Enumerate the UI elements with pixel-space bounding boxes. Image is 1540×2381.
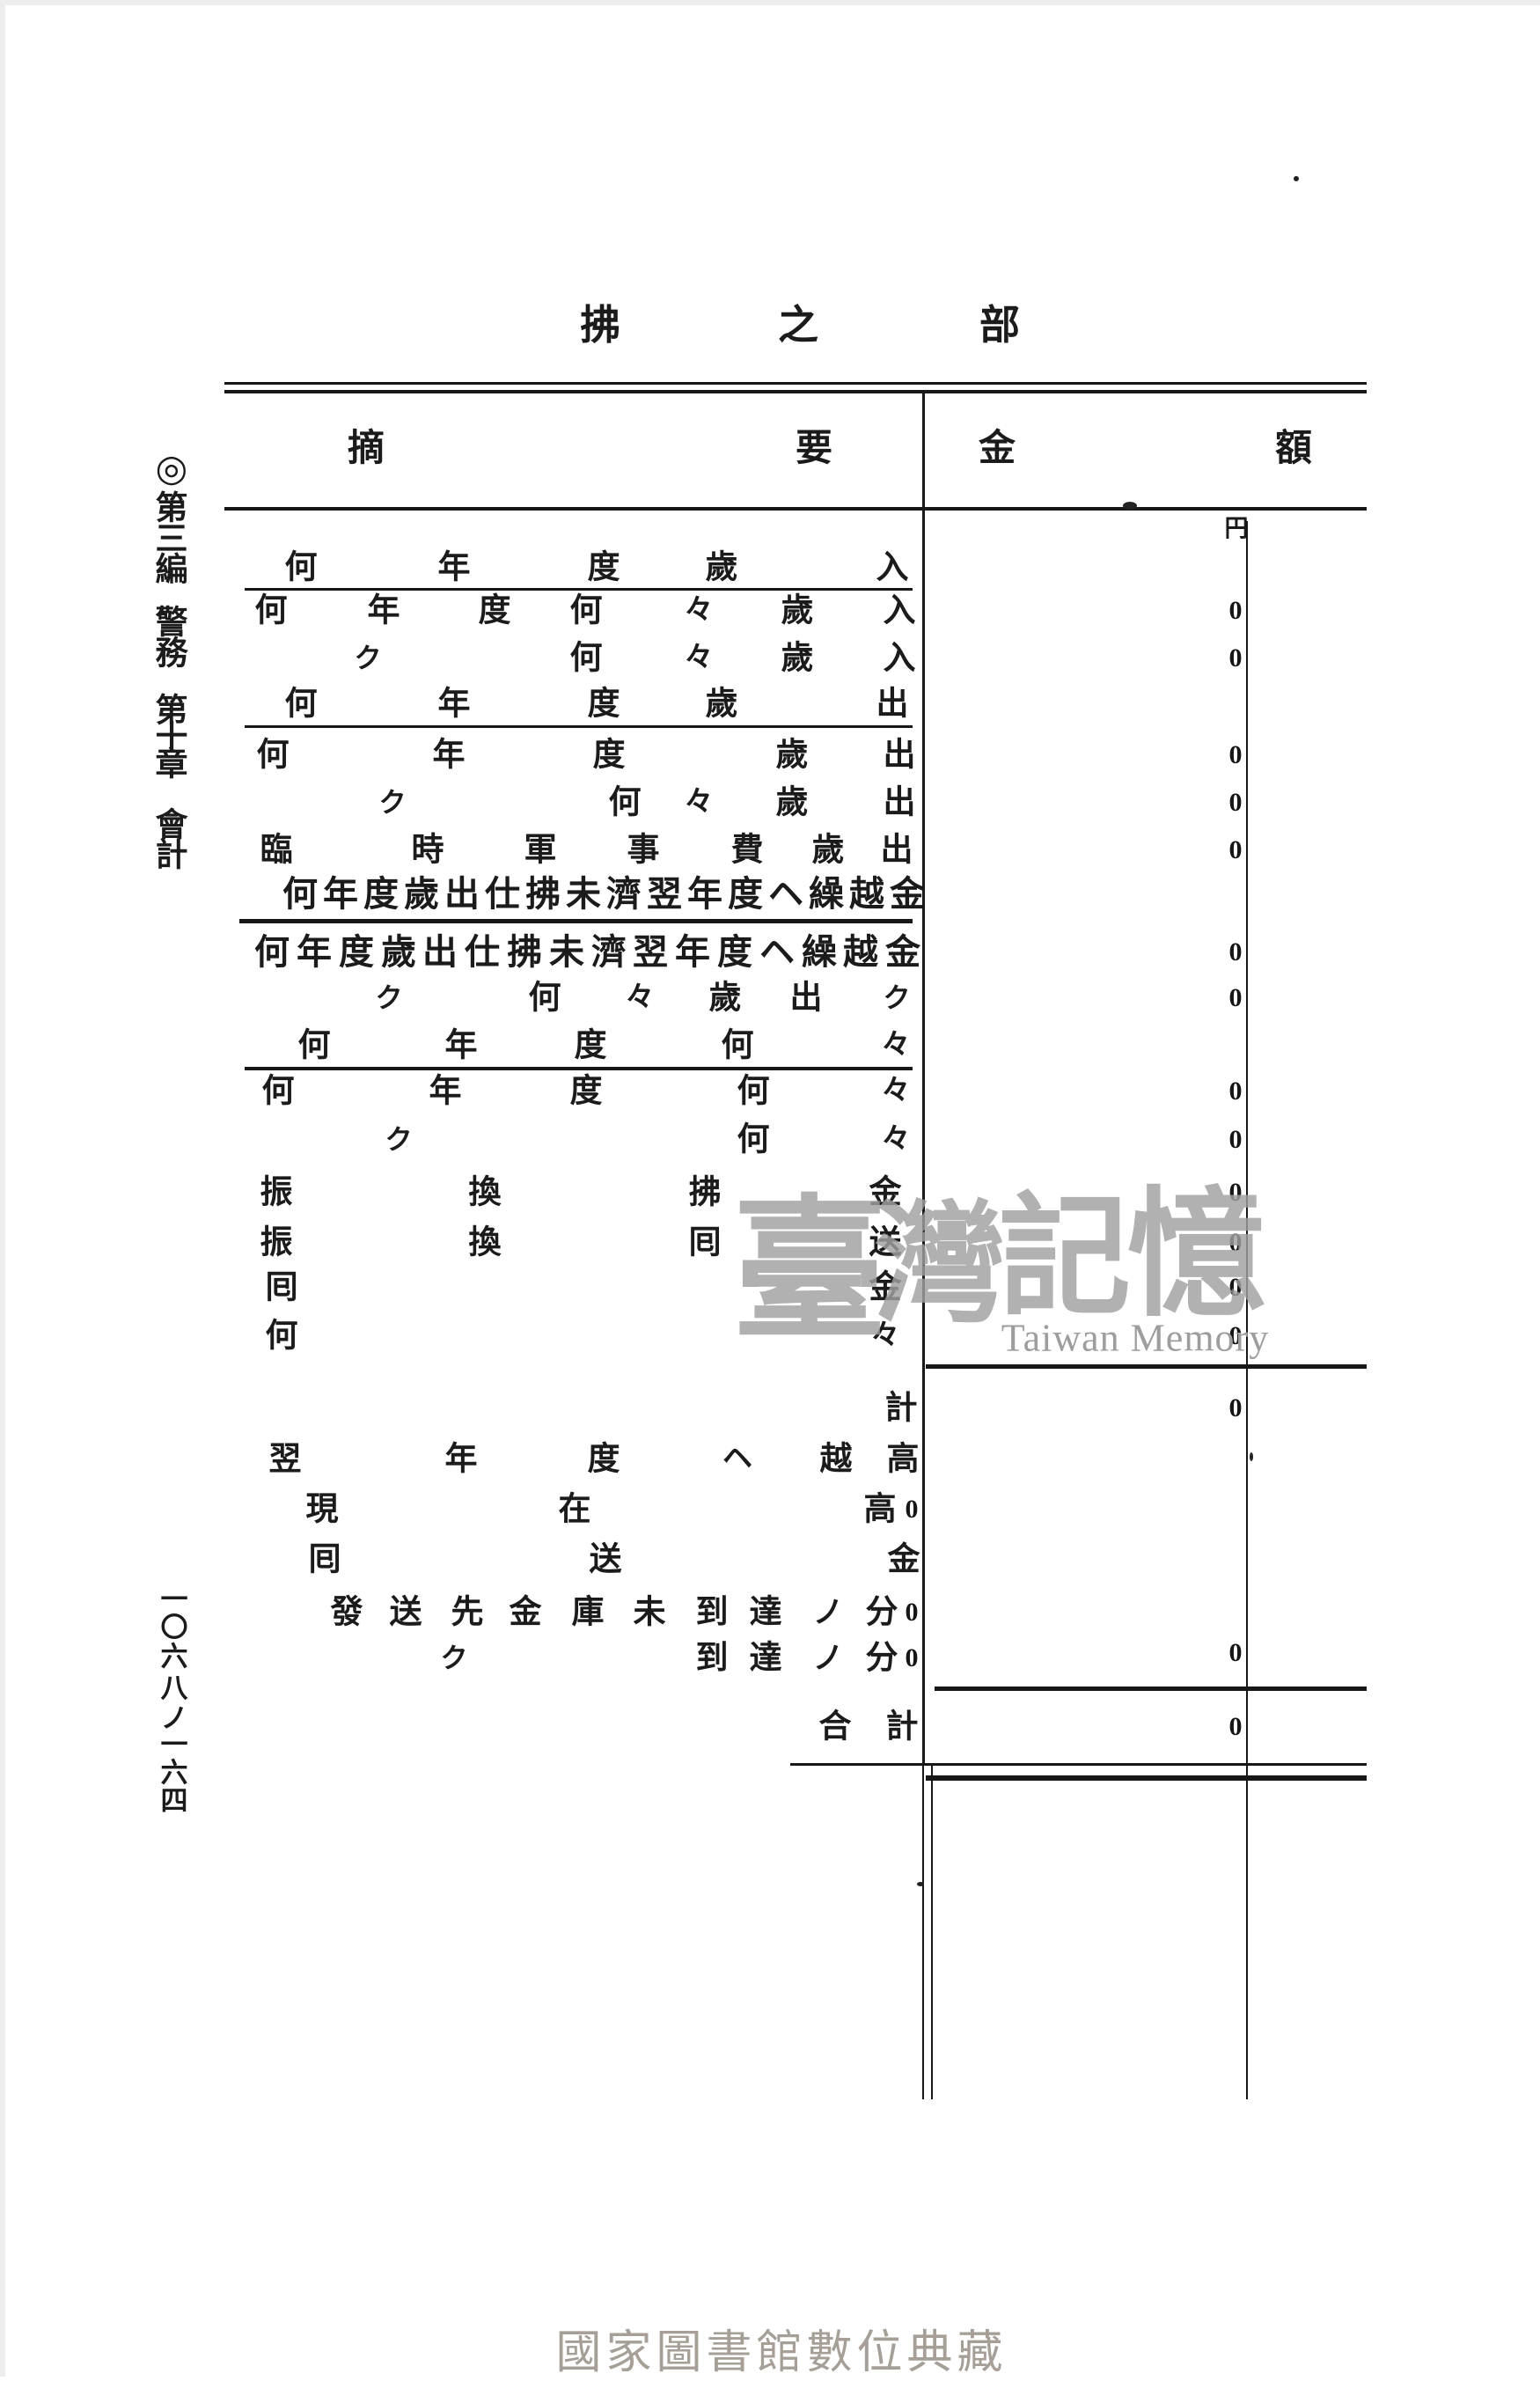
row-char: 出 (876, 688, 909, 721)
row-char: 度 (728, 877, 763, 912)
row-char: 發 (331, 1597, 363, 1629)
table-rule-horizontal (224, 382, 1367, 385)
amount-value: 0 (1229, 1078, 1243, 1105)
row-char: 何 (285, 552, 318, 584)
row-char: 費 (731, 834, 764, 867)
row-char: 何 (266, 1320, 298, 1353)
row-char: 時 (412, 834, 444, 867)
page-number-char: 一 (161, 1586, 188, 1613)
amount-value: 0 (1229, 1640, 1243, 1666)
row-char: 拂 (507, 935, 542, 970)
watermark-cjk-char: 臺 (733, 1195, 887, 1349)
row-char: 未 (549, 935, 584, 970)
row-char: 越 (849, 877, 884, 912)
row-char: 囘 (689, 1227, 722, 1260)
amount-value: 0 (1229, 742, 1243, 768)
row-char: ヘ (722, 1444, 752, 1474)
row-underline (245, 588, 913, 591)
row-char: 囘 (266, 1272, 298, 1304)
sidebar-char: 章 (156, 749, 188, 782)
row-char: 換 (469, 1227, 502, 1260)
row-char: 何 (570, 595, 603, 628)
scan-speck (917, 1882, 924, 1886)
row-char: 送 (390, 1597, 422, 1629)
row-char: 金 (885, 935, 920, 970)
amount-value: 0 (1229, 1714, 1243, 1740)
row-char: 出 (444, 877, 480, 912)
row-char: 年 (438, 688, 471, 721)
scan-speck (1250, 1452, 1253, 1461)
sidebar-char: 第 (156, 493, 188, 525)
page-number-char: 一 (161, 1731, 188, 1759)
row-char: 未 (566, 877, 601, 912)
row-char: 達 (750, 1642, 782, 1675)
sidebar-char: 警 (156, 607, 188, 640)
page-number-char: ノ (161, 1705, 188, 1732)
row-char: 未 (634, 1597, 666, 1629)
page-number-char: 六 (161, 1643, 188, 1671)
table-rule-horizontal (926, 1775, 1367, 1781)
row-char: 何 (257, 739, 290, 772)
row-char: ヘ (759, 935, 795, 970)
page-number-char: 四 (161, 1788, 188, 1815)
row-char: 年 (445, 1030, 478, 1062)
row-char: 出 (884, 787, 916, 819)
row-char: 高 (887, 1444, 920, 1476)
table-rule-vertical (922, 393, 925, 1763)
footer-archive-label: 國家圖書館數位典藏 (555, 2315, 1007, 2381)
row-char: 々 (685, 597, 714, 626)
row-char: 度 (363, 877, 399, 912)
row-char: ク (441, 1645, 468, 1672)
row-char: 歲 (776, 739, 809, 772)
row-char: 度 (479, 595, 511, 628)
row-char: 達 (750, 1597, 782, 1629)
row-char: 越 (843, 935, 878, 970)
row-char: 歲 (404, 877, 439, 912)
row-char: 何 (737, 1124, 770, 1157)
row-char: 事 (627, 834, 660, 867)
amount-value: 0 (1229, 1395, 1243, 1422)
row-char: 高 (864, 1494, 897, 1526)
row-underline (245, 725, 913, 728)
row-char: 年 (687, 877, 722, 912)
row-char: 度 (593, 739, 626, 772)
row-char: 翌 (633, 935, 668, 970)
row-char: 計 (886, 1711, 919, 1744)
row-char: 繰 (809, 877, 844, 912)
row-char: 々 (685, 644, 714, 673)
row-char: 振 (260, 1227, 293, 1260)
row-char: 度 (717, 935, 752, 970)
row-char: 年 (433, 739, 466, 772)
row-char: 年 (429, 1076, 462, 1108)
amount-header-char: 額 (1275, 430, 1312, 467)
sidebar-char: ◎ (156, 451, 188, 488)
row-char: ヘ (768, 877, 803, 912)
scan-edge-left (0, 0, 5, 2377)
row-char: ク (355, 645, 382, 672)
edge-zero-value: 0 (906, 1645, 919, 1672)
row-char: 現 (306, 1494, 339, 1526)
row-char: ク (379, 790, 407, 817)
table-rule-vertical (922, 1763, 924, 2099)
row-char: 濟 (591, 935, 627, 970)
amount-value: 0 (1229, 1127, 1243, 1153)
row-char: 合 (819, 1711, 852, 1744)
row-char: 振 (260, 1177, 293, 1209)
row-char: 越 (820, 1444, 853, 1476)
row-char: 入 (884, 643, 916, 675)
row-char: 々 (685, 789, 714, 818)
row-char: 何 (254, 935, 290, 970)
watermark-cjk-char: 灣 (874, 1200, 1006, 1332)
page-number-char: 六 (161, 1760, 188, 1787)
row-char: 分 (866, 1597, 898, 1629)
amount-value: 0 (1229, 837, 1243, 863)
watermark-cjk-char: 憶 (1127, 1187, 1266, 1326)
row-char: 翌 (269, 1444, 302, 1476)
row-char: 何 (722, 1030, 754, 1062)
row-underline (239, 919, 913, 923)
row-char: 歲 (706, 552, 738, 584)
row-char: 囘 (309, 1544, 341, 1576)
row-char: 歲 (812, 834, 845, 867)
row-char: 到 (696, 1597, 729, 1629)
sidebar-char: 編 (156, 555, 188, 587)
row-char: 歲 (381, 935, 416, 970)
title-char: 部 (979, 305, 1020, 346)
row-char: 度 (588, 688, 620, 721)
row-char: 度 (575, 1030, 607, 1062)
table-rule-vertical (931, 1763, 933, 2099)
row-char: 金 (510, 1597, 542, 1629)
scan-speck (1123, 502, 1137, 510)
row-char: 歲 (781, 595, 814, 628)
row-char: 何 (609, 787, 642, 819)
table-rule-horizontal (935, 1687, 1367, 1691)
row-char: 出 (884, 739, 916, 772)
row-char: 換 (469, 1177, 502, 1209)
row-char: 年 (323, 877, 358, 912)
row-char: 出 (422, 935, 458, 970)
row-char: 到 (696, 1642, 729, 1675)
table-rule-horizontal (224, 507, 1367, 511)
row-char: 歲 (706, 688, 738, 721)
row-char: 金 (890, 877, 925, 912)
summary-header-char: 摘 (348, 430, 385, 467)
amount-value: 0 (1229, 645, 1243, 672)
row-char: 何 (298, 1030, 331, 1062)
row-char: 計 (885, 1393, 918, 1425)
row-char: 何 (285, 688, 318, 721)
title-char: 拂 (580, 305, 620, 346)
row-char: 歲 (776, 787, 809, 819)
scanned-ledger-page: { "title": { "text": "拂之部", "y": 370, "c… (0, 0, 1540, 2377)
summary-header-char: 要 (796, 430, 832, 467)
row-char: 拂 (525, 877, 561, 912)
row-char: 々 (882, 1077, 911, 1106)
amount-value: 0 (1229, 985, 1243, 1011)
amount-value: 0 (1229, 939, 1243, 966)
row-char: 年 (438, 552, 471, 584)
row-char: 仕 (465, 935, 500, 970)
edge-zero-value: 0 (906, 1599, 919, 1626)
scan-speck (1294, 176, 1299, 181)
row-char: 年 (297, 935, 332, 970)
row-char: 入 (876, 552, 909, 584)
row-char: 濟 (606, 877, 642, 912)
row-char: 度 (588, 552, 620, 584)
row-char: 歲 (709, 982, 742, 1015)
row-char: 々 (882, 1126, 911, 1155)
row-char: 入 (884, 595, 916, 628)
row-char: 年 (445, 1444, 478, 1476)
table-rule-horizontal (790, 1763, 1367, 1766)
row-char: 分 (866, 1642, 898, 1675)
row-char: 何 (255, 595, 288, 628)
row-char: 臨 (260, 834, 293, 867)
sidebar-char: 計 (156, 840, 188, 872)
amount-value: 0 (1229, 790, 1243, 816)
row-char: 度 (339, 935, 374, 970)
row-char: 々 (626, 984, 655, 1013)
page-number-char: 八 (161, 1675, 188, 1702)
row-char: ク (884, 985, 911, 1012)
row-char: 拂 (689, 1177, 722, 1209)
row-char: ク (376, 985, 403, 1012)
currency-unit-label: 円 (1225, 518, 1249, 541)
row-char: 金 (888, 1544, 920, 1576)
row-char: 出 (790, 982, 823, 1015)
row-char: 仕 (485, 877, 520, 912)
amount-value: 0 (1229, 598, 1243, 624)
table-rule-horizontal (926, 1364, 1367, 1369)
scan-edge-top (0, 0, 1540, 5)
row-char: 繰 (802, 935, 837, 970)
row-char: 度 (570, 1076, 603, 1108)
row-char: 庫 (572, 1597, 605, 1629)
row-char: 歲 (781, 643, 814, 675)
row-char: ノ (812, 1643, 843, 1674)
row-char: 先 (451, 1597, 484, 1629)
table-rule-horizontal (224, 390, 1367, 393)
row-char: 何 (737, 1076, 770, 1108)
row-char: 何 (529, 982, 561, 1015)
sidebar-char: 三 (156, 524, 188, 556)
row-char: 々 (882, 1032, 911, 1061)
watermark-cjk-char: 記 (999, 1193, 1131, 1325)
row-char: 在 (559, 1494, 591, 1526)
row-char: ノ (812, 1598, 843, 1628)
row-char: 度 (588, 1444, 620, 1476)
amount-header-char: 金 (979, 430, 1016, 467)
row-char: ク (385, 1127, 413, 1154)
sidebar-char: 務 (156, 638, 188, 671)
page-number-char: 〇 (161, 1614, 188, 1642)
row-char: 送 (590, 1544, 622, 1576)
title-char: 之 (778, 305, 818, 346)
row-char: 出 (881, 834, 913, 867)
edge-zero-value: 0 (906, 1496, 919, 1523)
row-char: 翌 (647, 877, 682, 912)
row-char: 何 (262, 1076, 295, 1108)
row-char: 年 (675, 935, 710, 970)
row-underline (245, 1067, 913, 1070)
row-char: 軍 (524, 834, 557, 867)
row-char: 年 (368, 595, 400, 628)
row-char: 何 (570, 643, 603, 675)
row-char: 何 (282, 877, 318, 912)
